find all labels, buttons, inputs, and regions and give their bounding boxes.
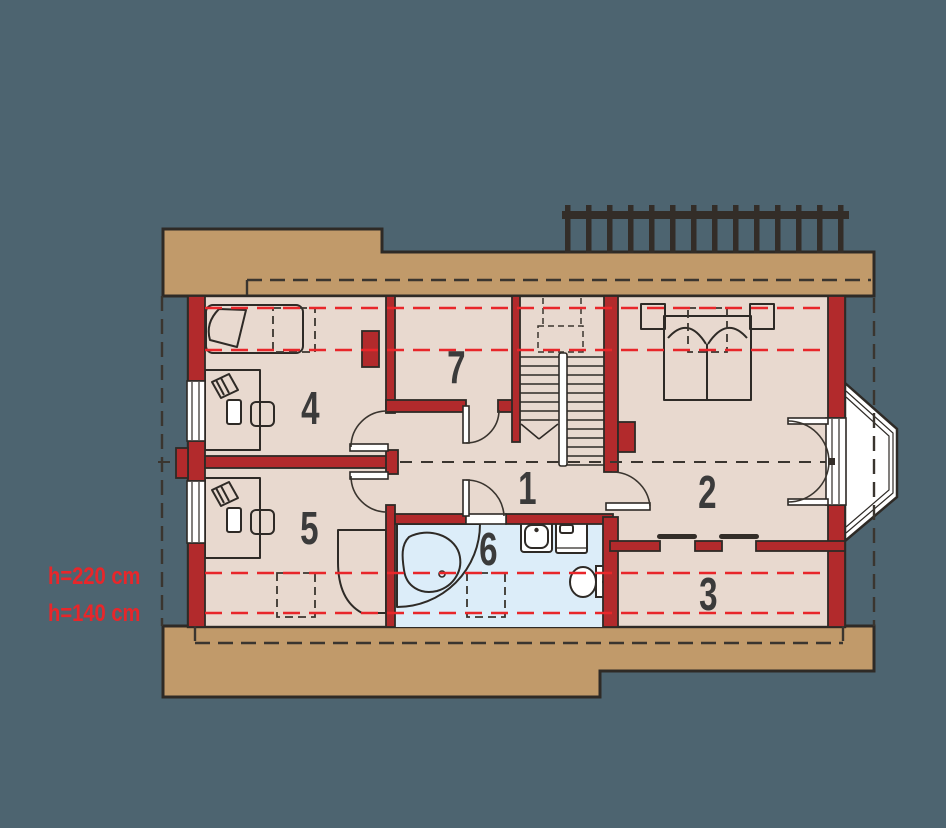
washing-machine <box>556 521 587 553</box>
balcony-railing <box>562 205 849 253</box>
room-label-2: 2 <box>698 465 716 519</box>
height-label-220: h=220 cm <box>48 563 140 591</box>
height-label-140: h=140 cm <box>48 600 140 628</box>
window-room4 <box>187 381 205 441</box>
room-label-6: 6 <box>479 522 497 576</box>
room-label-4: 4 <box>301 381 319 435</box>
room-label-5: 5 <box>300 501 318 555</box>
chimney-room2 <box>618 422 635 452</box>
floor-plan-drawing <box>0 0 946 828</box>
floor-plan-canvas: 1 2 3 4 5 6 7 h=220 cm h=140 cm <box>0 0 946 828</box>
window-room5 <box>187 481 205 543</box>
bay-window <box>845 383 897 541</box>
room-label-3: 3 <box>699 567 717 621</box>
room-label-7: 7 <box>447 340 465 394</box>
room-label-1: 1 <box>518 461 536 515</box>
stair-handrail <box>559 353 567 466</box>
